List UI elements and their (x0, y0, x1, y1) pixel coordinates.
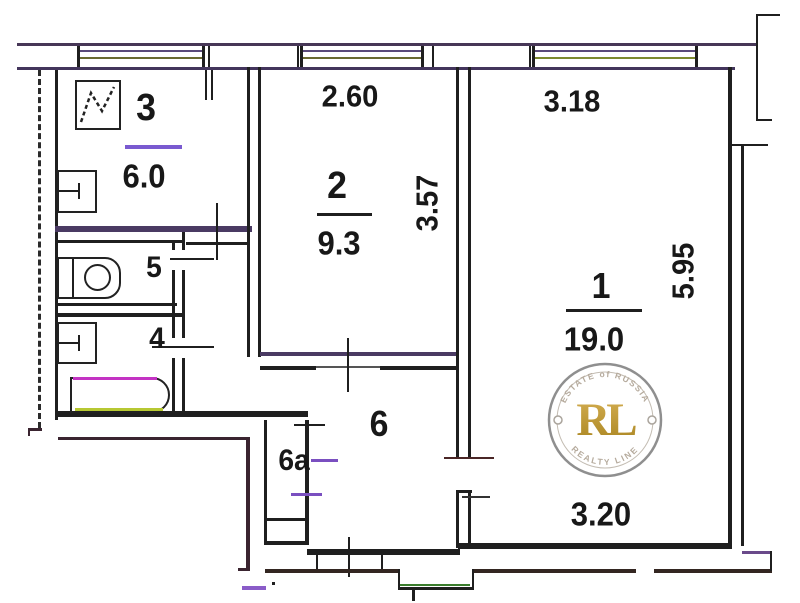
left-inner-wall (55, 70, 58, 420)
kitchen-sink-tap-v (78, 183, 80, 199)
bathtub-edge-yellow (75, 408, 163, 411)
kitchen-stub-wall-a (205, 70, 207, 100)
kitchen-door-tick (216, 203, 218, 260)
room2-area: 9.3 (317, 227, 360, 260)
room3-area: 6.0 (122, 160, 165, 193)
room2-door-tick (347, 338, 349, 392)
room6a-number: 6a (278, 446, 309, 476)
room2-left-wall-a (247, 67, 250, 357)
room3-number: 3 (136, 89, 156, 127)
dim-room1-width-bottom: 3.20 (571, 498, 631, 531)
closet-shelf-2 (264, 541, 309, 545)
room1-door-jamb (456, 490, 472, 493)
room1-underline (566, 309, 642, 312)
stairwell-line-v (246, 437, 250, 571)
floor-plan: 3 6.0 5 4 2.60 2 9.3 3.57 3.18 5.95 1 19… (0, 0, 800, 603)
stairwell-line-h (58, 437, 248, 440)
bath-sink-tap-v (78, 335, 80, 351)
room3-underline (125, 145, 182, 149)
room1-area: 19.0 (564, 323, 624, 356)
stove-zigzag-icon (77, 82, 118, 127)
dim-room2-width: 2.60 (322, 81, 379, 112)
kitchen-bottom-wall (55, 226, 252, 232)
bath-block-right-wall-b2 (182, 270, 185, 338)
window-1-pane-top (80, 50, 202, 52)
watermark-stamp-svg: ESTATE of RUSSIA REALTY LINE RL (545, 360, 665, 480)
closet-door-tick (294, 424, 325, 426)
window-3-cap-right (695, 46, 698, 67)
window-1-cap-right (202, 46, 205, 67)
left-foot-tick (28, 428, 42, 431)
room5-door-tick (170, 258, 214, 260)
window-2-pane-top (303, 50, 421, 52)
dim-room1-depth: 5.95 (668, 243, 699, 300)
pier-2-cap-right (529, 46, 531, 67)
window-1-pane-bot (80, 57, 202, 59)
stamp-right-dot (648, 416, 656, 424)
bath-block-right-wall-a2 (172, 270, 175, 338)
bath-block-right-wall-b1 (182, 232, 185, 250)
room1-left-wall-a-upper (456, 67, 459, 458)
bath-sink-tap-h (57, 342, 79, 344)
room1-door-tick (444, 457, 494, 459)
stove-icon (75, 80, 121, 130)
stamp-left-dot (554, 416, 562, 424)
room5-bottom-wall (55, 303, 177, 306)
stairwell-foot (238, 568, 247, 571)
pier-1-cap-right (297, 46, 299, 67)
bottom-right-purple-line (742, 551, 772, 554)
bathtub-edge-magenta (73, 377, 157, 380)
porch-green-line (400, 584, 470, 586)
room1-left-wall-b-lower (468, 492, 471, 548)
dim-room2-depth: 3.57 (412, 175, 443, 232)
stamp-initials: RL (576, 394, 636, 446)
room1-bottom-wall (458, 543, 732, 549)
window-3-pane-top (535, 50, 695, 52)
toilet-bowl-circle (84, 264, 111, 291)
room2-left-wall-b (258, 67, 261, 357)
closet-purple-dash-2 (291, 493, 322, 496)
bottom-outer-wall-3 (654, 569, 772, 573)
right-outer-wall (741, 146, 744, 546)
wall-top-outer (17, 43, 758, 46)
hall-top-line (186, 242, 248, 245)
closet-right-wall (305, 420, 309, 545)
kitchen-stub-wall-b (211, 70, 213, 100)
kitchen-sink-tap-h (57, 190, 79, 192)
wall-top-inner (17, 67, 735, 70)
room1-left-wall-b-upper (468, 67, 471, 458)
corridor-bottom-wall (307, 549, 460, 555)
left-foot-tick-v (28, 428, 30, 436)
dim-room1-width-top: 3.18 (544, 86, 601, 117)
room1-left-wall-a-lower (456, 492, 459, 548)
toilet-divider (72, 259, 74, 297)
watermark-stamp: ESTATE of RUSSIA REALTY LINE RL (545, 360, 665, 480)
pier-2-cap-left (432, 46, 434, 67)
room2-underline (317, 213, 372, 216)
room4-number: 4 (149, 324, 165, 354)
room6-number: 6 (370, 406, 389, 442)
room2-bottom-wall-top (260, 352, 458, 356)
window-3-pane-bot (535, 57, 695, 59)
room2-bottom-wall-left (260, 366, 316, 370)
right-external-tick-top (756, 14, 780, 16)
room2-number: 2 (327, 167, 347, 205)
window-2-cap-right (421, 46, 424, 67)
room1-right-wall (728, 67, 732, 546)
closet-left-wall (264, 420, 267, 545)
bath-block-right-wall-a1 (172, 240, 175, 250)
right-outer-connector (730, 144, 768, 146)
closet-shelf-1 (264, 518, 308, 521)
pier-1-cap-left (208, 46, 210, 67)
bath-block-right-wall-a3 (172, 358, 175, 415)
bottom-right-close-v (770, 551, 772, 571)
porch-tick-below (412, 590, 415, 601)
room2-bottom-wall-right (380, 366, 458, 370)
porch-bottom (398, 587, 474, 590)
left-outer-wall-dashed (38, 70, 41, 428)
room5-top-wall (55, 240, 185, 243)
bottom-outer-wall-1 (265, 569, 400, 573)
bottom-outer-wall-2 (474, 569, 636, 573)
room4-top-wall (55, 313, 185, 317)
bath-block-right-wall-b3 (182, 358, 185, 415)
room1-number: 1 (592, 268, 611, 304)
right-external-tick-bottom (756, 119, 772, 121)
right-external-vertical (756, 14, 758, 121)
window-2-pane-bot (303, 57, 421, 59)
closet-purple-dash-1 (311, 459, 338, 462)
room1-door-jamb-tick (462, 496, 490, 498)
room5-number: 5 (146, 253, 162, 283)
bottom-left-purple-dash (242, 586, 266, 590)
bottom-left-dot (272, 582, 275, 585)
